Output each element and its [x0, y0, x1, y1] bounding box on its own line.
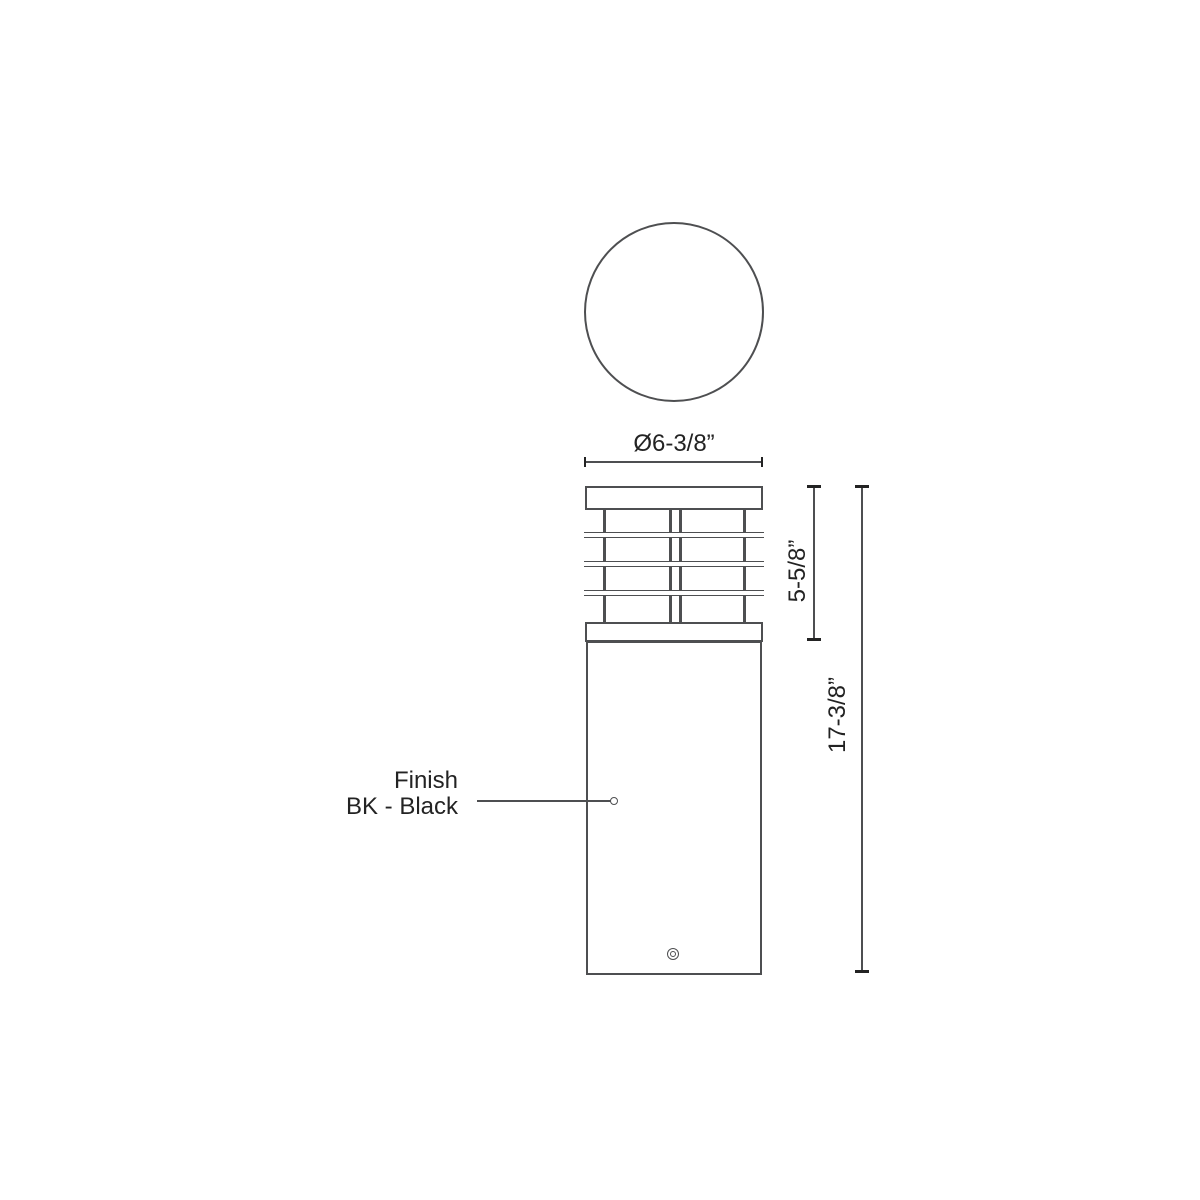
- louver-height-dim-tick-top: [807, 485, 821, 488]
- louver-height-dimension-label: 5-5/8”: [784, 540, 812, 603]
- diameter-dim-tick-right: [761, 457, 763, 467]
- drawing-canvas: Ø6-3/8” Finish BK - Black 5-5: [0, 0, 1200, 1200]
- overall-height-dimension-label: 17-3/8”: [824, 677, 852, 753]
- louver-height-dim-line: [813, 487, 815, 639]
- louver-slat-2: [584, 561, 764, 567]
- finish-label: Finish BK - Black: [290, 768, 458, 820]
- bollard-body: [586, 641, 762, 975]
- screw-detail-inner-circle: [670, 951, 676, 957]
- diameter-dim-tick-left: [584, 457, 586, 467]
- finish-label-line2: BK - Black: [290, 794, 458, 820]
- louver-height-dim-tick-bottom: [807, 638, 821, 641]
- louver-slat-3: [584, 590, 764, 596]
- overall-height-dim-tick-bottom: [855, 970, 869, 973]
- diameter-dimension-label: Ø6-3/8”: [585, 430, 763, 458]
- bollard-top-cap: [585, 486, 763, 510]
- overall-height-dim-line: [861, 487, 863, 972]
- diameter-dimension-line: [585, 461, 762, 463]
- top-view-circle: [584, 222, 764, 402]
- overall-height-dim-tick-top: [855, 485, 869, 488]
- finish-leader-line: [477, 800, 611, 802]
- louver-slat-1: [584, 532, 764, 538]
- finish-label-line1: Finish: [290, 768, 458, 794]
- louver-base-band: [585, 622, 763, 642]
- finish-leader-dot: [610, 797, 618, 805]
